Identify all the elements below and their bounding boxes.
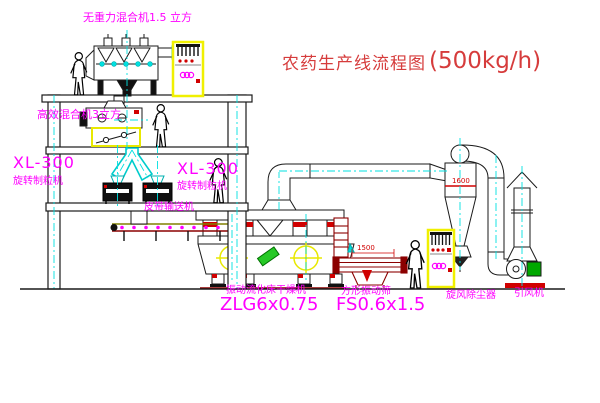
cad-flow-diagram: 农药生产线流程图 (500kg/h) 无重力混合机1.5 立方 高效混合机3立方…: [0, 0, 600, 403]
title-capacity: (500kg/h): [429, 48, 541, 74]
fan-motor: [527, 262, 541, 276]
fluid-bed-dryer: [196, 210, 354, 288]
dim-cyclone: 1600: [452, 178, 470, 185]
label-dryer-model: ZLG6x0.75: [220, 296, 319, 314]
title-text: 农药生产线流程图: [282, 49, 426, 74]
label-gravity-mixer: 无重力混合机1.5 立方: [83, 12, 192, 23]
screen-feed-hopper: [334, 218, 348, 257]
person-figure-1: [71, 53, 87, 95]
label-granulator-right-model: XL-300: [177, 161, 239, 177]
label-screen-model: FS0.6x1.5: [336, 296, 425, 314]
cabinet-1-indicators: [178, 59, 193, 62]
label-granulator-right-name: 旋转制粒机: [177, 182, 227, 192]
person-figure-4: [406, 241, 424, 288]
control-cabinet-1: [173, 42, 203, 96]
floor-slab-2: [46, 147, 248, 154]
label-belt-conveyor: 皮带输送机: [144, 203, 194, 213]
control-cabinet-2: [428, 230, 454, 287]
screen-deck: [338, 258, 402, 272]
floor-slab-roof: [42, 95, 252, 102]
dryer-feed-funnel: [257, 220, 283, 236]
label-cyclone: 旋风除尘器: [446, 291, 496, 301]
person-figure-2: [153, 105, 169, 147]
label-fan: 引风机: [514, 289, 544, 299]
label-granulator-left-model: XL-300: [13, 155, 75, 171]
dim-screen-length: 1500: [357, 245, 375, 252]
cabinet-2-indicators: [431, 248, 444, 251]
diagram-title: 农药生产线流程图 (500kg/h): [282, 48, 541, 74]
vibrating-screen: [333, 218, 407, 288]
label-granulator-left-name: 旋转制粒机: [13, 177, 63, 187]
induced-draft-fan: [505, 260, 545, 289]
label-high-eff-mixer: 高效混合机3立方: [37, 109, 121, 120]
